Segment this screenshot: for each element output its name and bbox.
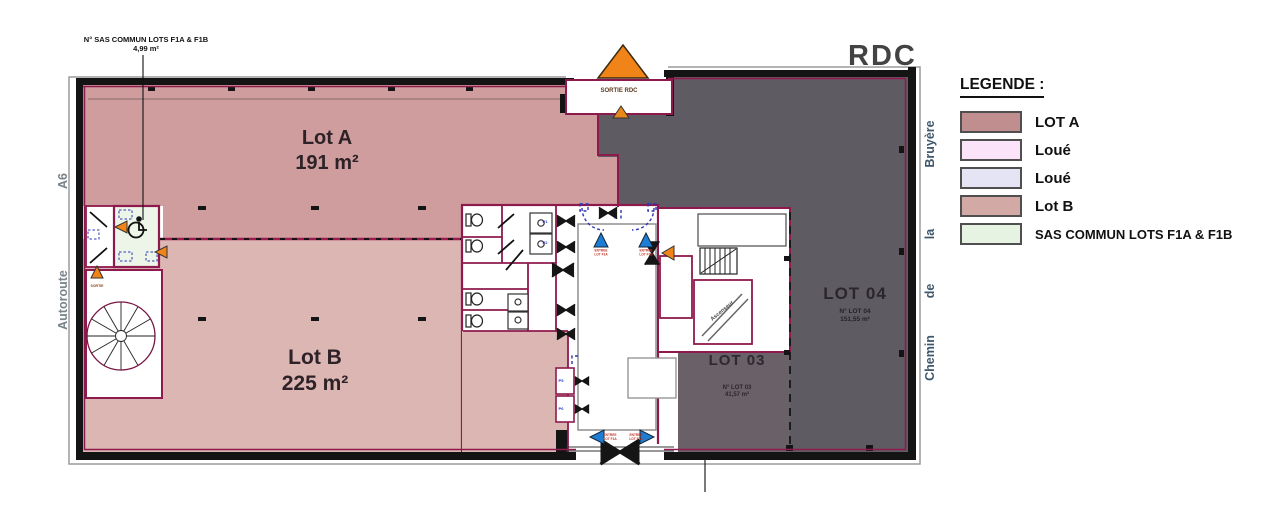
svg-text:N° LOT 04: N° LOT 04 — [839, 307, 871, 315]
svg-text:151,55 m²: 151,55 m² — [840, 316, 870, 323]
sortie-small-label: SORTIE — [90, 284, 104, 288]
road-label-la: la — [923, 219, 937, 249]
lot-b-extension — [462, 331, 568, 453]
exit-triangle-main — [598, 45, 648, 78]
svg-text:P5: P5 — [559, 378, 565, 383]
svg-text:LOT F1B: LOT F1B — [629, 437, 643, 441]
road-label-de: de — [923, 276, 937, 306]
svg-text:P2: P2 — [543, 240, 549, 245]
sortie-rdc-label: SORTIE RDC — [600, 88, 638, 94]
road-label-a6: A6 — [56, 161, 70, 201]
lot-03-name: LOT 03 — [692, 352, 782, 369]
legend-heading: LEGENDE : — [960, 76, 1044, 98]
legend-row-loue-1: Loué — [960, 139, 1265, 161]
lot-a-label: Lot A 191 m² — [257, 126, 397, 176]
svg-text:LOT F1A: LOT F1A — [594, 253, 608, 257]
utility-block: Ascenseur — [658, 208, 790, 352]
svg-text:LOT F1B: LOT F1B — [639, 253, 653, 257]
elevator-room: Ascenseur — [694, 280, 752, 344]
annotation-text: N° SAS COMMUN LOTS F1A & F1B 4,99 m² — [84, 35, 209, 53]
lot03-sub-labels: N° LOT 03 41,57 m² — [723, 385, 752, 398]
legend-swatch-loue-2 — [960, 167, 1022, 189]
lot-b-name: Lot B — [245, 345, 385, 371]
lot-a-name: Lot A — [257, 126, 397, 151]
road-label-chemin: Chemin — [923, 328, 937, 388]
road-label-bruyere: Bruyère — [923, 109, 937, 179]
legend-label-lot-b: Lot B — [1035, 198, 1073, 215]
legend-swatch-loue-1 — [960, 139, 1022, 161]
legend-row-loue-2: Loué — [960, 167, 1265, 189]
page-title: RDC — [848, 40, 917, 73]
floor-plan-page: Ascenseur — [0, 0, 1280, 526]
lot-04-name: LOT 04 — [805, 284, 905, 304]
legend-swatch-sas — [960, 223, 1022, 245]
sas-lobby — [86, 206, 114, 267]
legend-row-sas: SAS COMMUN LOTS F1A & F1B — [960, 223, 1265, 245]
svg-text:LOT F1A: LOT F1A — [603, 437, 617, 441]
svg-text:4,99 m²: 4,99 m² — [133, 44, 159, 53]
lot-a-area: 191 m² — [257, 151, 397, 176]
legend-swatch-lot-a — [960, 111, 1022, 133]
svg-text:41,57 m²: 41,57 m² — [725, 391, 749, 398]
legend-panel: LEGENDE : LOT A Loué Loué Lot B SAS COMM… — [960, 76, 1265, 251]
legend-label-lot-a: LOT A — [1035, 114, 1079, 131]
legend-label-loue-2: Loué — [1035, 170, 1071, 187]
sas-commun-room — [114, 206, 159, 267]
spiral-stair-room — [86, 270, 162, 398]
svg-text:N° LOT 03: N° LOT 03 — [723, 385, 752, 391]
svg-text:P1: P1 — [543, 219, 549, 224]
spiral-staircase — [87, 302, 155, 370]
svg-text:P6: P6 — [559, 406, 565, 411]
svg-text:N° SAS COMMUN LOTS F1A & F1B: N° SAS COMMUN LOTS F1A & F1B — [84, 35, 209, 44]
legend-label-sas: SAS COMMUN LOTS F1A & F1B — [1035, 227, 1232, 242]
legend-swatch-lot-b — [960, 195, 1022, 217]
legend-row-lot-a: LOT A — [960, 111, 1265, 133]
lot-b-area: 225 m² — [245, 371, 385, 397]
legend-label-loue-1: Loué — [1035, 142, 1071, 159]
straight-staircase — [700, 248, 737, 274]
legend-row-lot-b: Lot B — [960, 195, 1265, 217]
lot-b-label: Lot B 225 m² — [245, 345, 385, 397]
road-label-autoroute: Autoroute — [56, 255, 70, 345]
